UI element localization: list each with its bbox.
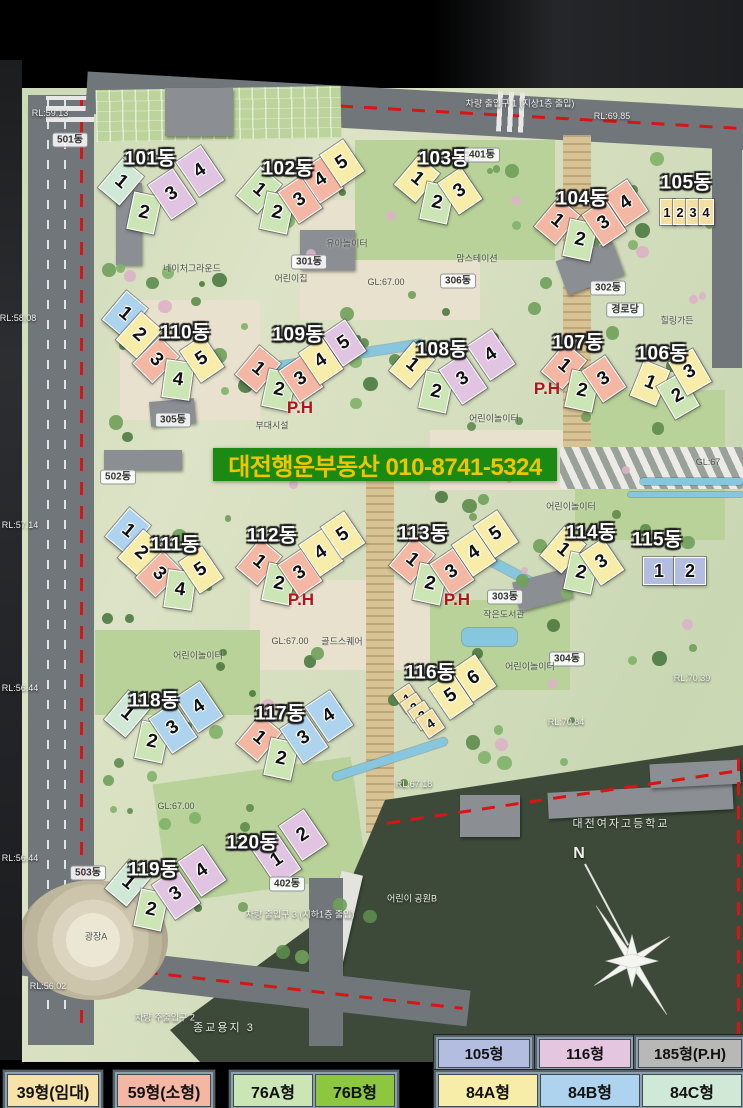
tree-icon xyxy=(652,651,667,666)
tree-icon xyxy=(124,270,136,282)
map-label: GL:67.00 xyxy=(157,801,194,811)
tree-icon xyxy=(689,644,697,652)
map-label: RL:56.44 xyxy=(2,683,39,693)
tree-icon xyxy=(699,292,706,299)
building-label: 114동 xyxy=(566,518,616,545)
pool xyxy=(462,628,517,646)
building-label: 105동 xyxy=(660,168,711,195)
legend-group: 59형(소형) xyxy=(113,1070,215,1108)
school-building xyxy=(649,760,740,789)
tree-icon xyxy=(159,818,171,830)
map-label: 401동 xyxy=(464,148,500,163)
map-label: RL:70.39 xyxy=(674,673,711,683)
map-label: RL:57.14 xyxy=(2,520,39,530)
map-label: RL:67.18 xyxy=(396,779,433,789)
tree-icon xyxy=(511,196,520,205)
map-label: 힐링가든 xyxy=(660,314,693,327)
site-boundary xyxy=(737,758,740,1053)
tree-icon xyxy=(681,536,695,550)
legend-item: 105형 xyxy=(438,1039,530,1068)
map-label: GL:67.00 xyxy=(271,636,308,646)
building-label: 113동 xyxy=(398,519,448,546)
map-label: 광장A xyxy=(85,930,108,943)
tree-icon xyxy=(191,297,200,306)
tree-icon xyxy=(146,277,158,289)
site-plan-map: N 1234101동12345102동123103동1234104동123410… xyxy=(0,0,743,1108)
tree-icon xyxy=(114,758,124,768)
tree-icon xyxy=(478,751,491,764)
map-label: 맘스테이션 xyxy=(456,252,497,265)
building-label: 111동 xyxy=(150,530,199,557)
tree-icon xyxy=(276,945,289,958)
building-label: 118동 xyxy=(129,686,179,713)
tree-icon xyxy=(435,491,447,503)
building-label: 112동 xyxy=(247,521,297,548)
map-label: 503동 xyxy=(70,866,106,881)
building-label: 104동 xyxy=(556,184,607,211)
tree-icon xyxy=(505,164,518,177)
top-edge-photo xyxy=(430,0,743,88)
map-label: 어린이놀이터 xyxy=(469,412,519,425)
legend-group: 105형 xyxy=(434,1035,534,1072)
left-edge-photo xyxy=(0,60,22,1060)
tree-icon xyxy=(652,422,664,434)
map-label: 어린이놀이터 xyxy=(546,500,596,513)
ad-banner: 대전행운부동산 010-8741-5324 xyxy=(213,448,557,481)
map-label: 어린이놀이터 xyxy=(505,660,555,673)
tree-icon xyxy=(462,499,476,513)
legend-item: 84A형 xyxy=(438,1074,538,1107)
map-label: 어린이집 xyxy=(274,272,307,285)
tree-icon xyxy=(147,771,157,781)
map-label: 402동 xyxy=(269,877,305,892)
legend-item: 76B형 xyxy=(315,1074,395,1107)
map-label: 작은도서관 xyxy=(483,608,524,621)
map-label: 306동 xyxy=(440,274,476,289)
tree-icon xyxy=(650,152,664,166)
stream xyxy=(628,492,743,497)
legend-group: 116형 xyxy=(535,1035,635,1072)
map-label: RL:56.02 xyxy=(30,981,67,991)
stream xyxy=(640,478,743,485)
tree-icon xyxy=(363,377,377,391)
building-label: 109동 xyxy=(272,320,323,347)
tree-icon xyxy=(127,808,133,814)
map-label: RL:70.84 xyxy=(548,717,585,727)
offsite-building-502 xyxy=(104,450,182,470)
tree-icon xyxy=(606,326,619,339)
map-label: RL:56.44 xyxy=(2,853,39,863)
tree-icon xyxy=(636,246,648,258)
tree-icon xyxy=(102,263,116,277)
map-label: 502동 xyxy=(100,470,136,485)
lane-line xyxy=(47,100,49,1020)
tree-icon xyxy=(408,291,416,299)
map-label: RL:59.13 xyxy=(32,108,69,118)
tree-icon xyxy=(528,302,541,315)
tree-icon xyxy=(682,619,693,630)
building-label: 107동 xyxy=(552,328,603,355)
map-label: 302동 xyxy=(590,281,626,296)
building-label: 110동 xyxy=(160,318,210,345)
penthouse-label: P.H xyxy=(288,590,314,610)
tree-icon xyxy=(548,679,558,689)
penthouse-label: P.H xyxy=(534,379,560,399)
right-road xyxy=(712,133,742,368)
tree-icon xyxy=(540,277,552,289)
map-label: 경로당 xyxy=(606,303,644,318)
tree-icon xyxy=(109,415,124,430)
map-label: 유아놀이터 xyxy=(326,237,367,250)
legend-group: 39형(임대) xyxy=(3,1070,103,1108)
lane-line xyxy=(64,100,66,1020)
legend-item: 76A형 xyxy=(233,1074,313,1107)
legend-group: 76A형76B형 xyxy=(229,1070,399,1108)
map-label: GL:67 xyxy=(696,457,721,467)
tree-icon xyxy=(628,656,637,665)
tree-icon xyxy=(189,812,201,824)
map-label: RL:58.08 xyxy=(0,313,36,323)
tree-icon xyxy=(497,756,512,771)
building-label: 106동 xyxy=(636,339,687,366)
building-label: 102동 xyxy=(262,154,313,181)
building-label: 115동 xyxy=(632,525,682,552)
tree-icon xyxy=(635,223,650,238)
tree-icon xyxy=(494,725,504,735)
legend-item: 116형 xyxy=(539,1039,631,1068)
legend-item: 84C형 xyxy=(642,1074,742,1107)
map-label: 대전여자고등학교 xyxy=(573,815,670,831)
tree-icon xyxy=(311,647,324,660)
building-label: 116동 xyxy=(405,658,455,685)
penthouse-label: P.H xyxy=(287,398,313,418)
unit-block: 2 xyxy=(674,557,706,585)
building-label: 119동 xyxy=(128,855,178,882)
map-label: 차량 출입구 3 (지하1층 출입) xyxy=(246,908,355,921)
building-label: 101동 xyxy=(124,144,175,171)
map-label: 어린이 공원B xyxy=(387,892,437,905)
ad-banner-text: 대전행운부동산 010-8741-5324 xyxy=(228,447,542,482)
penthouse-label: P.H xyxy=(444,590,470,610)
compass-n-label: N xyxy=(573,845,585,863)
tree-icon xyxy=(622,466,630,474)
map-label: 종교용지 3 xyxy=(193,1019,255,1035)
tree-icon xyxy=(295,950,309,964)
map-label: 301동 xyxy=(291,255,327,270)
legend-item: 39형(임대) xyxy=(7,1074,99,1107)
tree-icon xyxy=(689,295,698,304)
building-label: 117동 xyxy=(255,699,305,726)
map-label: 305동 xyxy=(155,413,191,428)
boardwalk-south xyxy=(366,478,394,833)
map-label: 부대시설 xyxy=(255,419,288,432)
legend-item: 84B형 xyxy=(540,1074,640,1107)
building-label: 120동 xyxy=(226,828,277,855)
map-label: GL:67.00 xyxy=(367,277,404,287)
map-label: 501동 xyxy=(52,133,88,148)
map-label: 어린이놀이터 xyxy=(173,649,223,662)
unit-block: 1 xyxy=(643,557,675,585)
map-label: 차량 주출입구 2 xyxy=(135,1011,195,1024)
legend-item: 59형(소형) xyxy=(117,1074,211,1107)
legend-group: 84A형84B형84C형 xyxy=(434,1070,743,1108)
building-label: 108동 xyxy=(416,335,467,362)
map-label: 303동 xyxy=(487,590,523,605)
legend-item: 185형(P.H) xyxy=(638,1039,742,1068)
tree-icon xyxy=(125,614,134,623)
tree-icon xyxy=(339,189,346,196)
unit-block: 4 xyxy=(699,199,714,225)
parking-structure xyxy=(165,88,233,136)
legend-group: 185형(P.H) xyxy=(634,1035,743,1072)
tree-icon xyxy=(103,775,114,786)
building-label: 103동 xyxy=(418,144,469,171)
map-label: 네이처그라운드 xyxy=(163,262,221,275)
map-label: RL:69.85 xyxy=(594,111,631,121)
tree-icon xyxy=(102,613,113,624)
tree-icon xyxy=(516,574,529,587)
tree-icon xyxy=(241,323,248,330)
tree-icon xyxy=(350,398,361,409)
compass-rose-icon xyxy=(585,895,680,1030)
tree-icon xyxy=(216,662,225,671)
school-building xyxy=(460,795,520,837)
map-label: 차량 출입구 1 (지상1층 출입) xyxy=(466,97,575,110)
map-label: 골드스퀘어 xyxy=(321,635,362,648)
